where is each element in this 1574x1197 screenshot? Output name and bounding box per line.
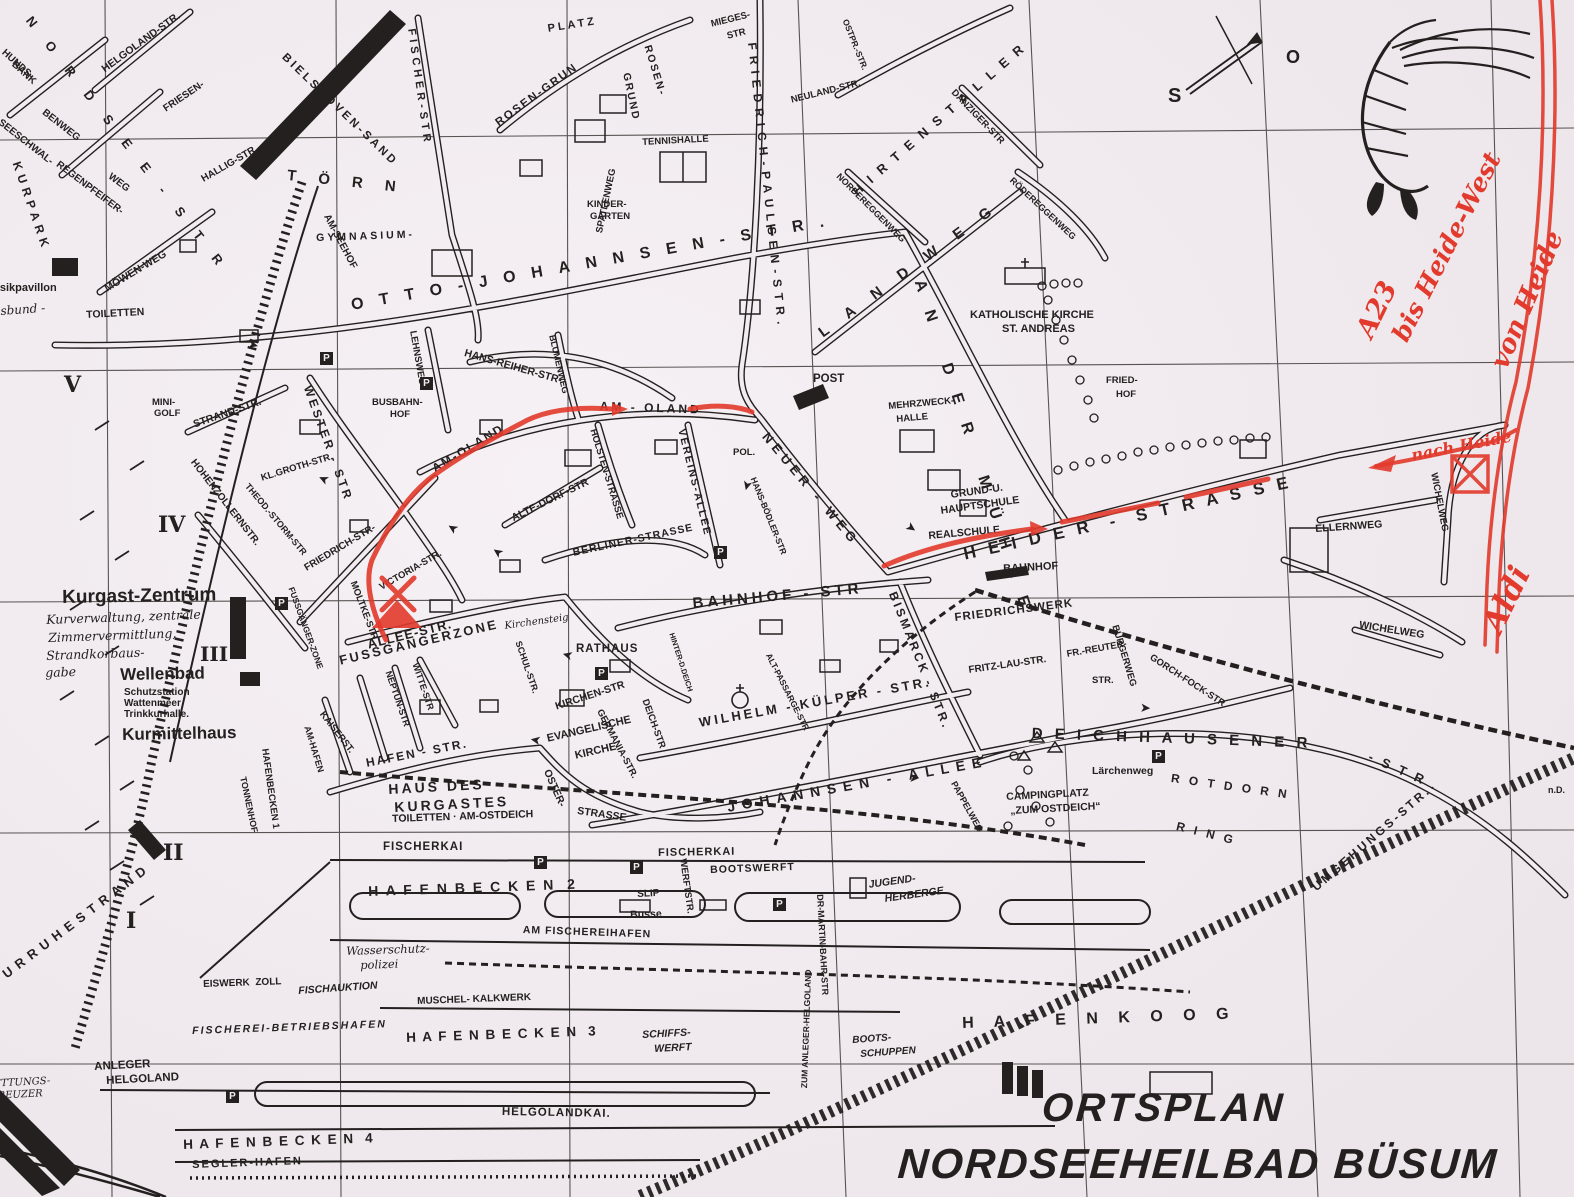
busum-town-map: HUNDS-BANKHELGOLAND-STR.N O R D S E E - … bbox=[0, 0, 1574, 1197]
red-route-heider-strasse bbox=[884, 529, 1032, 566]
red-annotation-drawing bbox=[0, 0, 1574, 1197]
red-route-am-oland bbox=[369, 408, 612, 640]
red-aldi-marker bbox=[1452, 456, 1488, 492]
